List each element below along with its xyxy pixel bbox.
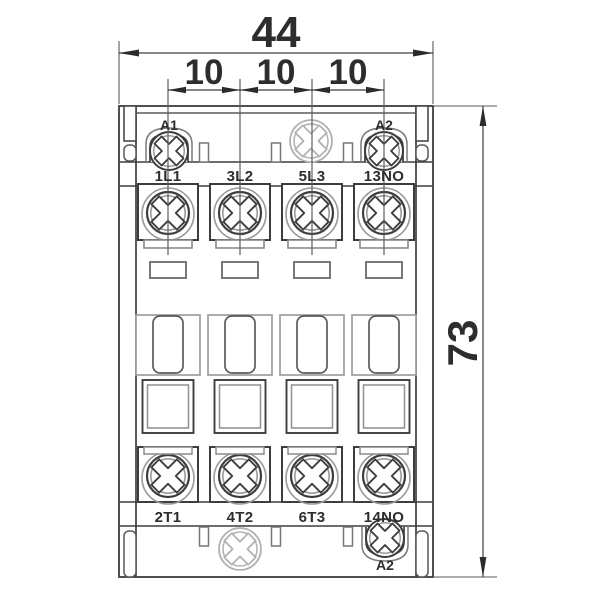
line-terminal-label-3l2: 3L2: [227, 168, 254, 185]
coil-terminal-label-a2-bottom: A2: [376, 557, 394, 573]
mounting-tab-top-right: [416, 106, 428, 141]
load-terminal-label-2t1: 2T1: [155, 509, 182, 526]
terminal-block-2t1: [138, 447, 198, 504]
pitch-dimension-value-3: 10: [329, 53, 368, 92]
divider-tab: [272, 143, 281, 162]
divider-tab: [200, 527, 209, 546]
load-terminal-label-14no: 14NO: [364, 509, 404, 526]
clip-tab-upper-right: [416, 145, 428, 161]
divider-tab: [344, 143, 353, 162]
mounting-tab-top-left: [124, 106, 136, 141]
terminal-block-4t2: [210, 447, 270, 504]
contactor-dimension-drawing: A1 A2 1L1 3L2 5L3 13NO 2T1 4T2 6T3 14NO …: [0, 0, 600, 600]
divider-tab: [272, 527, 281, 546]
terminal-block-14no: [354, 447, 414, 504]
divider-tab: [200, 143, 209, 162]
pitch-dimensions: 10 10 10: [168, 53, 384, 93]
clip-tab-lower-right: [416, 531, 428, 577]
line-terminal-label-5l3: 5L3: [299, 168, 326, 185]
clip-tab-upper-left: [124, 145, 136, 161]
line-terminal-label-1l1: 1L1: [155, 168, 182, 185]
pitch-dimension-value-1: 10: [185, 53, 224, 92]
pitch-dimension-value-2: 10: [257, 53, 296, 92]
height-dimension-value: 73: [439, 320, 486, 367]
coil-terminal-label-a1: A1: [160, 117, 178, 133]
divider-tab: [344, 527, 353, 546]
line-terminal-label-13no: 13NO: [364, 168, 404, 185]
load-terminal-label-4t2: 4T2: [227, 509, 254, 526]
load-terminal-label-6t3: 6T3: [299, 509, 326, 526]
coil-terminal-label-a2-top: A2: [375, 117, 393, 133]
terminal-block-6t3: [282, 447, 342, 504]
drawing-canvas: A1 A2 1L1 3L2 5L3 13NO 2T1 4T2 6T3 14NO …: [0, 0, 600, 600]
width-dimension-value: 44: [252, 8, 301, 57]
clip-tab-lower-left: [124, 531, 136, 577]
